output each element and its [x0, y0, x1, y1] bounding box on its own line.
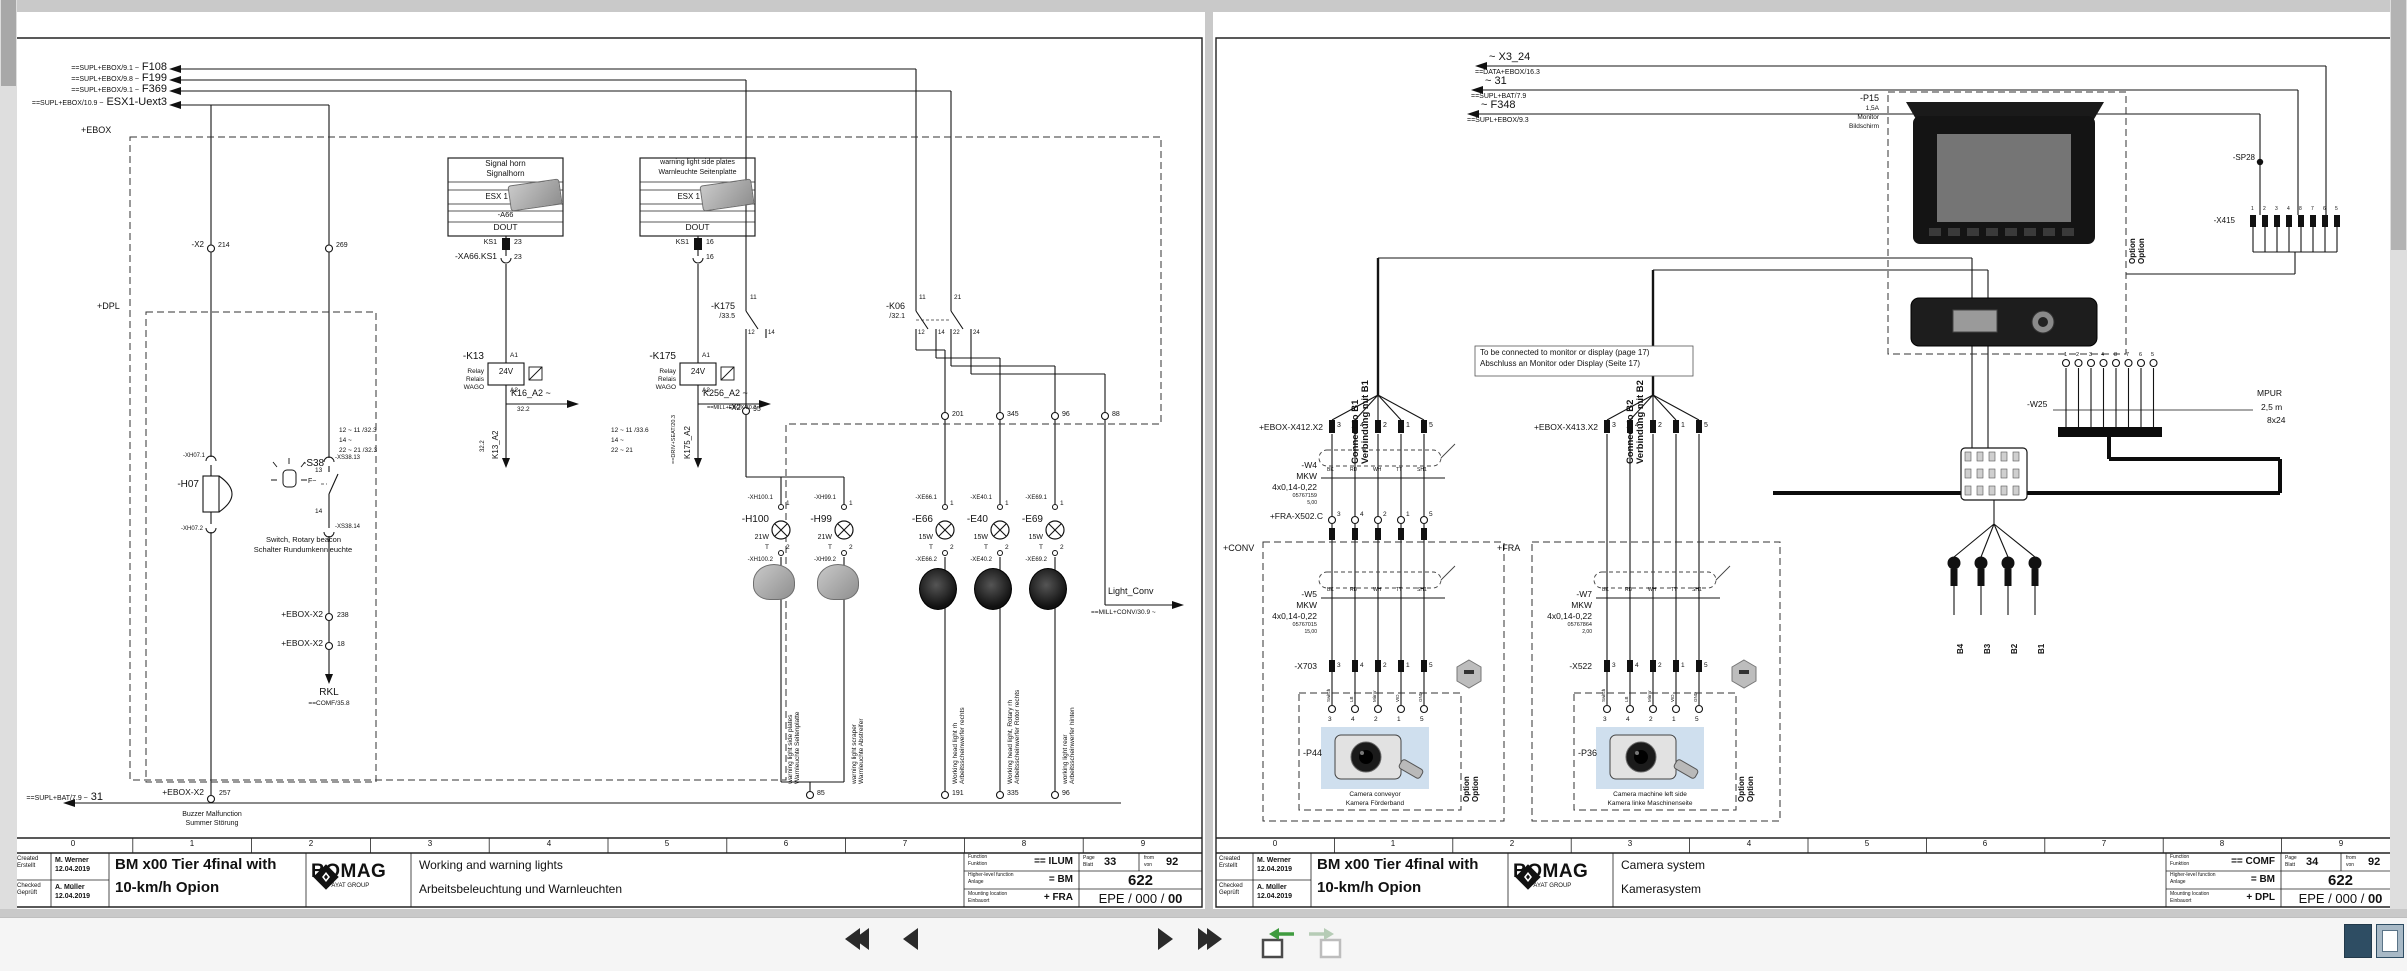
pin: 1: [1681, 662, 1685, 669]
supply-f369: ==SUPL+EBOX/9.1 ~F369: [11, 84, 167, 96]
wirecolor: WH: [1648, 588, 1656, 593]
sheet-33: ==SUPL+EBOX/9.1 ~F108 ==SUPL+EBOX/9.8 ~F…: [11, 12, 1205, 909]
rkl-ref: ==COMF/35.8: [293, 700, 365, 707]
pin: 1: [1406, 422, 1410, 430]
pin: 5: [1704, 422, 1708, 430]
lamp-watt: 15W: [907, 534, 933, 542]
k13-a2-dref: 32.2: [480, 440, 486, 452]
lamp-watt: 21W: [743, 534, 769, 542]
wirecolor: TT: [1671, 588, 1677, 593]
ruler-2: 2: [1502, 840, 1522, 849]
p36-option: OptionOption: [1738, 776, 1755, 802]
lamp-name: -H99: [792, 515, 832, 526]
k16-a2-ref: 32.2: [517, 406, 530, 413]
p15-amp: 1,5A: [1819, 105, 1879, 112]
lamp-c1: -XH99.1: [788, 495, 836, 501]
pin: 4: [1635, 662, 1639, 669]
ruler-5: 5: [1857, 840, 1877, 849]
esx-horn-io: DOUT: [448, 223, 563, 232]
bomag-logo: BOMAGFAYAT GROUP: [311, 862, 386, 889]
sig: LB: [1350, 696, 1355, 702]
previous-view-icon: [1258, 924, 1298, 964]
mpin: 6: [2139, 353, 2142, 359]
lamp-watt: 15W: [962, 534, 988, 542]
supply-uext3: ==SUPL+EBOX/10.9 ~ESX1-Uext3: [11, 97, 167, 109]
x522: -X522: [1550, 662, 1592, 671]
wirecolor: BK: [1602, 588, 1609, 593]
mpin: 2: [2076, 353, 2079, 359]
k16-a2-arrow: K16_A2 ~: [511, 389, 551, 399]
cpin: 4: [1626, 716, 1630, 723]
esx-warn-title-en: warning light side plates: [640, 159, 755, 167]
mpin: 1: [2064, 353, 2067, 359]
bomag-logo: BOMAGFAYAT GROUP: [1513, 862, 1588, 889]
pin: 5: [1429, 422, 1433, 430]
pin: 2: [1383, 662, 1387, 669]
w4-len: 5,00: [1257, 501, 1317, 506]
wirecolor: TT: [1396, 588, 1402, 593]
lamp-photo-e66: [919, 568, 957, 610]
mpin: 4: [2101, 353, 2104, 359]
mpin: 7: [2126, 353, 2129, 359]
x415-pin: 8: [2299, 207, 2302, 212]
pin: 4: [1360, 662, 1364, 669]
x2-214-name: -X2: [171, 241, 204, 250]
tb-page-num: 34: [2306, 857, 2318, 869]
x415-pin: 2: [2263, 207, 2266, 212]
sig: Switch: [1327, 689, 1332, 702]
s38-13: 13: [315, 467, 322, 474]
w25-size: 8x24: [2267, 416, 2285, 425]
tb-created-de: Erstellt: [17, 863, 35, 869]
lamp-c1: -XE69.1: [999, 495, 1047, 501]
pdf-toolbar: 33 / 92: [0, 917, 2407, 971]
tb-checked: Checked: [17, 883, 41, 889]
lamp-t: T: [765, 544, 769, 551]
sig: Switch: [1602, 689, 1607, 702]
tb-total: 92: [1166, 857, 1178, 869]
p44-desc-en: Camera conveyor: [1321, 791, 1429, 798]
lamp-watt: 15W: [1017, 534, 1043, 542]
x703: -X703: [1275, 662, 1317, 671]
ruler-0: 0: [63, 840, 83, 849]
tb-f3v: + DPL: [2203, 893, 2275, 904]
w5: -W5: [1287, 590, 1317, 599]
tb-created: Created: [1219, 856, 1240, 862]
supply-f348-ref: ==SUPL+EBOX/9.3: [1467, 117, 1529, 125]
k256-a2-arrow: K256_A2 ~: [703, 389, 748, 399]
esx-warn-io: DOUT: [640, 223, 755, 232]
lamp-photo-h100: [753, 564, 795, 600]
cpin: 2: [1374, 716, 1378, 723]
k13-crossrefs: 12 ~ 11 /32.314 ~22 ~ 21 /32.3: [339, 426, 377, 456]
sheet-34: ~ X3_24 ==DATA+EBOX/16.3 ~ 31 ==SUPL+BAT…: [1213, 12, 2403, 909]
first-page-button[interactable]: [845, 928, 869, 950]
tb-from: from: [1144, 856, 1154, 861]
circle-88: 88: [1112, 411, 1120, 419]
kc175-14: 14: [768, 330, 775, 336]
lamp-name: -E40: [948, 515, 988, 526]
sig: VID: [1396, 694, 1401, 702]
fra-label: +FRA: [1497, 544, 1520, 554]
pin: 1: [1406, 511, 1410, 518]
w7-mkw: MKW: [1562, 601, 1592, 610]
tb-created: Created: [17, 856, 38, 862]
esx-horn-title-en: Signal horn: [448, 160, 563, 169]
lamp-photo-h99: [817, 564, 859, 600]
lamp-c1: -XH100.1: [725, 495, 773, 501]
tb-page-num: 33: [1104, 857, 1116, 869]
h07-c2: -XH07.2: [161, 526, 203, 532]
tb-desc-en: Camera system: [1621, 859, 1705, 872]
tb-from-de: von: [1144, 863, 1152, 868]
wirecolor: RD: [1625, 588, 1632, 593]
single-page-view-icon[interactable]: [2344, 924, 2372, 958]
k175-r1: Relay: [642, 368, 676, 375]
tb-doc: EPE / 000 / 00: [2281, 892, 2400, 906]
wirecolor: BK: [1327, 588, 1334, 593]
tb-title-2: 10-km/h Opion: [115, 880, 219, 896]
b4-label: B4: [1957, 644, 1966, 654]
kc06-14: 14: [938, 330, 945, 336]
mpin: 5: [2151, 353, 2154, 359]
ruler-7: 7: [2094, 840, 2114, 849]
lamp-t: T: [929, 544, 933, 551]
ebox-x2-238-pin: 238: [337, 612, 349, 620]
tb-checked-date: 12.04.2019: [55, 893, 90, 901]
ruler-4: 4: [539, 840, 559, 849]
k175-a2-dref: ==DRIV+SEAT/20.3: [672, 415, 678, 464]
wirecolor: RD: [1350, 468, 1357, 473]
s38-desc-de: Schalter Rundumkennleuchte: [223, 546, 383, 554]
lamp-p1: 1: [849, 500, 853, 507]
x415-pin: 3: [2275, 207, 2278, 212]
previous-page-icon: [903, 928, 918, 950]
cpin: 1: [1672, 716, 1676, 723]
tb-created-date: 12.04.2019: [55, 866, 90, 874]
x415-pin: 6: [2323, 207, 2326, 212]
tb-f1: Function: [2170, 855, 2189, 860]
first-page-icon2: [854, 928, 869, 950]
x415-pin: 4: [2287, 207, 2290, 212]
w4-mkw: MKW: [1287, 472, 1317, 481]
k13-a2-down: K13_A2: [492, 431, 501, 459]
b2-label: B2: [2011, 644, 2020, 654]
s38-c13: -XS38.13: [335, 455, 360, 461]
pin: 3: [1337, 662, 1341, 669]
x502c: +FRA-X502.C: [1228, 512, 1323, 521]
bat-31: ==SUPL+BAT/7.9 ~31: [13, 792, 103, 804]
w25-mpur: MPUR: [2257, 389, 2282, 398]
mpin: 8: [2114, 353, 2117, 359]
ebox-x2-257-pin: 257: [219, 790, 231, 798]
w7-len: 2,00: [1532, 630, 1592, 635]
circle-345: 345: [1007, 411, 1019, 419]
ebox-x2-18: +EBOX-X2: [251, 639, 323, 648]
left-scrollbar-thumb[interactable]: [1, 0, 16, 86]
tb-checked-name: A. Müller: [1257, 884, 1287, 892]
lamp-c2: -XE40.2: [944, 557, 992, 563]
tb-doc: EPE / 000 / 00: [1079, 892, 1202, 906]
esx-warn-pin-top: 16: [706, 239, 714, 247]
lamp-c1: -XE66.1: [889, 495, 937, 501]
cpin: 1: [1397, 716, 1401, 723]
wirecolor: SH1: [1417, 468, 1427, 473]
ruler-8: 8: [2212, 840, 2232, 849]
tb-f3de: Einbauort: [2170, 899, 2191, 904]
lamp-name: -H100: [729, 515, 769, 526]
tb-checked-de: Geprüft: [1219, 890, 1239, 896]
w4: -W4: [1287, 461, 1317, 470]
s38-desc-en: Switch, Rotary beacon: [236, 536, 371, 544]
pin: 3: [1612, 422, 1616, 430]
bomag-diamond-icon: [311, 862, 341, 892]
buzzer-de: Summer Störung: [156, 820, 268, 828]
esx-warn-title-de: Warnleuchte Seitenplatte: [640, 169, 755, 177]
sig: GND: [1419, 692, 1424, 702]
b3-label: B3: [1984, 644, 1993, 654]
tb-created-de: Erstellt: [1219, 863, 1237, 869]
circuit-label-5: working light rearArbeitsscheinwerfer hi…: [1062, 707, 1076, 784]
w5-size: 4x0,14-0,22: [1257, 612, 1317, 621]
pin: 4: [1360, 511, 1364, 518]
monitor-option: OptionOption: [2129, 238, 2146, 264]
lamp-c2: -XH99.2: [788, 557, 836, 563]
tb-created-name: M. Werner: [55, 857, 89, 865]
pin: 1: [1681, 422, 1685, 430]
mpin: 3: [2089, 353, 2092, 359]
ebox-x2-238: +EBOX-X2: [251, 610, 323, 619]
esx-horn-conn: -XA66.KS1: [419, 252, 497, 261]
ruler-4: 4: [1739, 840, 1759, 849]
ruler-8: 8: [1014, 840, 1034, 849]
lamp-p2: 2: [849, 544, 853, 551]
last-page-icon2: [1207, 928, 1222, 950]
right-scrollbar-thumb[interactable]: [2391, 0, 2406, 250]
kc175-11: 11: [750, 294, 757, 301]
tb-title-1: BM x00 Tier 4final with: [115, 857, 276, 873]
tb-page-label: Page: [2285, 856, 2297, 861]
last-page-button[interactable]: [1198, 928, 1222, 950]
k13-r1: Relay: [450, 368, 484, 375]
wirecolor: BK: [1327, 468, 1334, 473]
lamp-p2: 2: [1060, 544, 1064, 551]
circle-96b: 96: [1062, 790, 1070, 798]
ebox-x2-18-pin: 18: [337, 641, 345, 649]
ruler-7: 7: [895, 840, 915, 849]
supply-f348: ~ F348: [1481, 100, 1516, 112]
circle-201: 201: [952, 411, 964, 419]
tb-f2v: = BM: [2203, 875, 2275, 886]
ruler-6: 6: [776, 840, 796, 849]
supply-x3-24: ~ X3_24: [1489, 52, 1530, 64]
tb-total: 92: [2368, 857, 2380, 869]
tb-checked: Checked: [1219, 883, 1243, 889]
light-conv: Light_Conv: [1108, 587, 1154, 597]
esx-horn-dev: -A66: [448, 211, 563, 219]
ruler-0: 0: [1265, 840, 1285, 849]
p44-desc-de: Kamera Förderband: [1321, 800, 1429, 807]
esx-horn-ks1: KS1: [459, 239, 497, 247]
pin: 5: [1429, 511, 1433, 518]
left-scrollbar-track[interactable]: [0, 0, 17, 909]
pin: 2: [1658, 422, 1662, 430]
k13-name: -K13: [444, 352, 484, 363]
w25-len: 2,5 m: [2261, 403, 2282, 412]
tb-f2de: Anlage: [2170, 880, 2186, 885]
wirecolor: SH1: [1417, 588, 1427, 593]
ruler-5: 5: [657, 840, 677, 849]
tb-f3v: + FRA: [1001, 893, 1073, 904]
k13-r3: WAGO: [450, 384, 484, 391]
tb-f3de: Einbauort: [968, 899, 989, 904]
k13-r2: Relais: [450, 376, 484, 383]
ruler-9: 9: [1133, 840, 1153, 849]
ebox-label: +EBOX: [81, 126, 111, 136]
b1-label: B1: [2038, 644, 2047, 654]
cpin: 2: [1649, 716, 1653, 723]
tb-page-label-de: Blatt: [1083, 863, 1093, 868]
esx-warn-esx: ESX 1: [648, 193, 700, 202]
lamp-c1: -XE40.1: [944, 495, 992, 501]
ruler-1: 1: [1383, 840, 1403, 849]
left-diagram-graphics: [11, 12, 1205, 909]
kc06-22: 22: [953, 330, 960, 336]
lamp-c2: -XH100.2: [725, 557, 773, 563]
w5-len: 15,00: [1257, 630, 1317, 635]
ruler-3: 3: [420, 840, 440, 849]
lamp-name: -E66: [893, 515, 933, 526]
w7: -W7: [1562, 590, 1592, 599]
circuit-label-3: Working head light rhArbeitsscheinwerfer…: [952, 707, 966, 784]
next-page-icon: [1158, 928, 1173, 950]
circuit-label-1: warning light side platesWarnleuchte Sei…: [787, 712, 801, 784]
light-conv-ref: ==MILL+CONV/30.9 ~: [1091, 609, 1156, 616]
ruler-6: 6: [1975, 840, 1995, 849]
sig: Mirror: [1373, 690, 1378, 702]
pin: 3: [1337, 511, 1341, 518]
s38-f: F~: [308, 478, 316, 486]
circle-96: 96: [1062, 411, 1070, 419]
ruler-2: 2: [301, 840, 321, 849]
p44-option: OptionOption: [1463, 776, 1480, 802]
p36: -P36: [1578, 749, 1597, 759]
circle-191: 191: [952, 790, 964, 798]
pin: 4: [1360, 422, 1364, 430]
x2-95-name: -X2: [711, 404, 741, 413]
sig: VID: [1671, 694, 1676, 702]
tb-created-name: M. Werner: [1257, 857, 1291, 865]
note-en: To be connected to monitor or display (p…: [1480, 349, 1649, 358]
esx-horn-esx: ESX 1: [456, 193, 508, 202]
kc175-ref: /33.5: [701, 313, 735, 321]
lamp-c2: -XE66.2: [889, 557, 937, 563]
kc06-name: -K06: [861, 302, 905, 312]
kc06-21: 21: [954, 294, 961, 301]
tb-f1de: Funktion: [2170, 862, 2189, 867]
esx-horn-title-de: Signalhorn: [448, 170, 563, 179]
bomag-diamond-icon: [1513, 862, 1543, 892]
circuit-label-4: Working head light, Rotary rhArbeitssche…: [1007, 690, 1021, 784]
lamp-name: -E69: [1003, 515, 1043, 526]
note-de: Abschluss an Monitor oder Display (Seite…: [1480, 360, 1640, 369]
pin: 5: [1704, 662, 1708, 669]
ruler-1: 1: [182, 840, 202, 849]
pin: 2: [1383, 422, 1387, 430]
w25: -W25: [2027, 400, 2047, 409]
w5-mkw: MKW: [1287, 601, 1317, 610]
p36-desc-de: Kamera linke Maschinenseite: [1596, 800, 1704, 807]
cpin: 3: [1328, 716, 1332, 723]
s38-c14: -XS38.14: [335, 524, 360, 530]
kc06-12: 12: [918, 330, 925, 336]
esx-horn-pin-top: 23: [514, 239, 522, 247]
tb-checked-name: A. Müller: [55, 884, 85, 892]
wirecolor: TT: [1396, 468, 1402, 473]
supply-31: ~ 31: [1485, 76, 1507, 88]
sp28: -SP28: [2213, 154, 2255, 163]
kc175-name: -K175: [691, 302, 735, 312]
tb-from: from: [2346, 856, 2356, 861]
circle-85: 85: [817, 790, 825, 798]
pin: 1: [1406, 662, 1410, 669]
sig: Mirror: [1648, 690, 1653, 702]
tb-page-label: Page: [1083, 856, 1095, 861]
ruler-3: 3: [1620, 840, 1640, 849]
conv-label: +CONV: [1223, 544, 1254, 554]
tb-f1de: Funktion: [968, 862, 987, 867]
x2-269: 269: [336, 242, 348, 250]
tb-checked-de: Geprüft: [17, 890, 37, 896]
w4-size: 4x0,14-0,22: [1257, 483, 1317, 492]
pin: 5: [1429, 662, 1433, 669]
k13-a1: A1: [510, 352, 518, 359]
dpl-label: +DPL: [97, 302, 120, 312]
pin: 3: [1337, 422, 1341, 430]
tb-from-de: von: [2346, 863, 2354, 868]
tb-desc-de: Arbeitsbeleuchtung und Warnleuchten: [419, 883, 622, 896]
two-page-view-icon[interactable]: [2376, 924, 2404, 958]
previous-page-button[interactable]: [903, 928, 918, 950]
kc06-ref: /32.1: [871, 313, 905, 321]
lamp-p2: 2: [950, 544, 954, 551]
x415-pin: 7: [2311, 207, 2314, 212]
buzzer-en: Buzzer Malfunction: [156, 811, 268, 819]
pin: 3: [1612, 662, 1616, 669]
next-view-icon: [1305, 924, 1345, 964]
k175-a1: A1: [702, 352, 710, 359]
cpin: 5: [1420, 716, 1424, 723]
tb-page-label-de: Blatt: [2285, 863, 2295, 868]
lamp-watt: 21W: [806, 534, 832, 542]
kc06-11: 11: [919, 294, 926, 301]
h07-c1: -XH07.1: [163, 453, 205, 459]
circuit-label-2: warning light scraperWarnleuchte Abstrei…: [851, 718, 865, 784]
x415-pin: 1: [2251, 207, 2254, 212]
kc06-24: 24: [973, 330, 980, 336]
x415: -X415: [2189, 217, 2235, 226]
next-page-button[interactable]: [1158, 928, 1173, 950]
wirecolor: WH: [1373, 468, 1381, 473]
tb-f1: Function: [968, 855, 987, 860]
p15-monitor: Monitor: [1819, 114, 1879, 121]
tb-desc-de: Kamerasystem: [1621, 883, 1701, 896]
lamp-p2: 2: [786, 544, 790, 551]
pin: 2: [1383, 511, 1387, 518]
x2-214-pin: 214: [218, 242, 230, 250]
circle-335: 335: [1007, 790, 1019, 798]
tb-f2de: Anlage: [968, 880, 984, 885]
